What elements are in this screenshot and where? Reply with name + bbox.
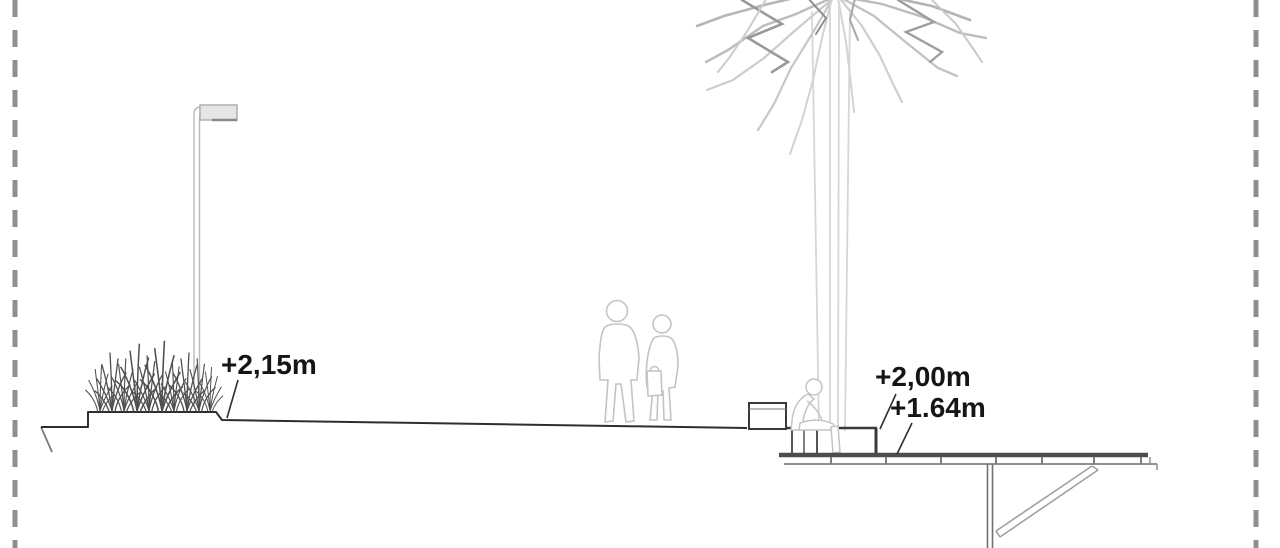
elevation-label-bench: +2,00m bbox=[875, 363, 971, 391]
pedestrian-man bbox=[599, 301, 639, 423]
handbag bbox=[647, 371, 662, 396]
timber-deck bbox=[779, 455, 1157, 470]
elevation-label-deck: +1.64m bbox=[890, 394, 986, 422]
leader-deck-level bbox=[897, 423, 912, 454]
ground-profile bbox=[41, 412, 747, 452]
lamp-head bbox=[200, 105, 237, 120]
deck-post bbox=[988, 464, 993, 548]
section-drawing-canvas: +2,15m +2,00m +1.64m bbox=[0, 0, 1280, 548]
palm-trunk bbox=[812, 2, 850, 430]
deck-joist-ticks bbox=[831, 457, 1141, 464]
ornamental-grass-planter bbox=[86, 341, 223, 411]
leader-promenade-level bbox=[227, 380, 238, 418]
pedestrian-woman bbox=[646, 315, 678, 420]
pedestrian-pair bbox=[599, 301, 678, 423]
elevation-label-promenade: +2,15m bbox=[221, 351, 317, 379]
palm-fronds bbox=[697, 0, 986, 154]
diagonal-brace bbox=[996, 466, 1098, 537]
seated-person bbox=[791, 379, 840, 453]
bench-backrest-block bbox=[749, 403, 786, 429]
section-drawing-linework bbox=[0, 0, 1280, 548]
